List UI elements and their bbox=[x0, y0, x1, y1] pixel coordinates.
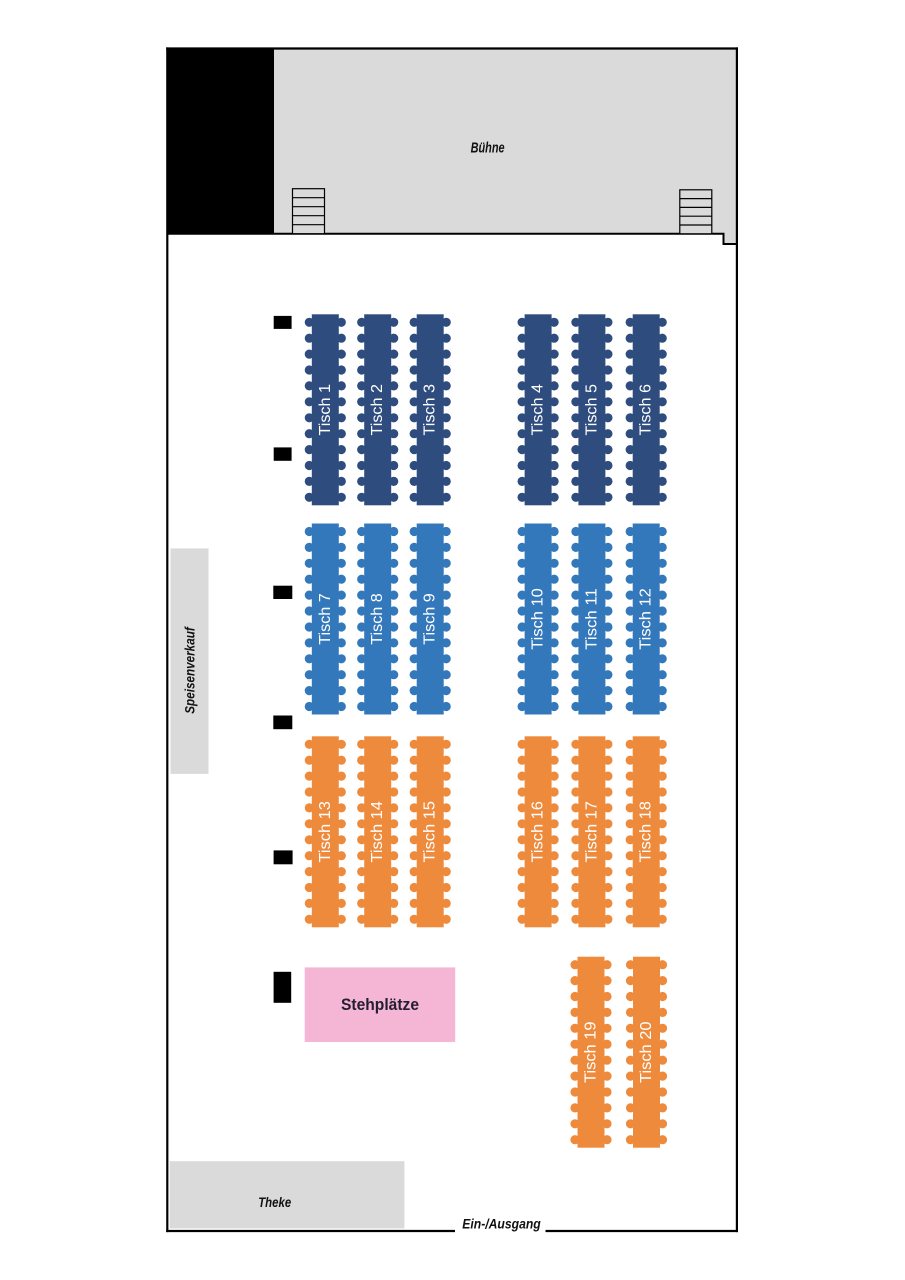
svg-text:Tisch 18: Tisch 18 bbox=[638, 801, 655, 863]
svg-text:Tisch 13: Tisch 13 bbox=[317, 801, 334, 863]
svg-text:Tisch 12: Tisch 12 bbox=[638, 588, 655, 650]
svg-text:Tisch 14: Tisch 14 bbox=[369, 801, 386, 863]
svg-text:Tisch 7: Tisch 7 bbox=[317, 593, 334, 645]
svg-text:Tisch 9: Tisch 9 bbox=[422, 593, 439, 645]
svg-text:Tisch 6: Tisch 6 bbox=[638, 384, 655, 436]
svg-text:Tisch 16: Tisch 16 bbox=[530, 801, 547, 863]
svg-text:Speisenverkauf: Speisenverkauf bbox=[182, 626, 197, 714]
svg-text:Tisch 11: Tisch 11 bbox=[583, 588, 600, 650]
svg-text:Tisch 10: Tisch 10 bbox=[530, 588, 547, 650]
svg-text:Tisch 20: Tisch 20 bbox=[638, 1021, 655, 1083]
svg-text:Tisch 5: Tisch 5 bbox=[583, 384, 600, 436]
svg-text:Tisch 2: Tisch 2 bbox=[369, 384, 386, 436]
svg-text:Tisch 1: Tisch 1 bbox=[317, 384, 334, 436]
svg-text:Tisch 17: Tisch 17 bbox=[583, 801, 600, 863]
svg-text:Stehplätze: Stehplätze bbox=[341, 996, 419, 1014]
svg-text:Theke: Theke bbox=[258, 1194, 291, 1210]
svg-text:Tisch 8: Tisch 8 bbox=[369, 593, 386, 645]
svg-text:Bühne: Bühne bbox=[471, 140, 505, 156]
svg-text:Tisch 19: Tisch 19 bbox=[583, 1021, 600, 1083]
svg-text:Tisch 4: Tisch 4 bbox=[530, 384, 547, 436]
svg-text:Tisch 15: Tisch 15 bbox=[422, 801, 439, 863]
svg-text:Tisch 3: Tisch 3 bbox=[422, 384, 439, 436]
svg-text:Ein-/Ausgang: Ein-/Ausgang bbox=[462, 1215, 541, 1231]
